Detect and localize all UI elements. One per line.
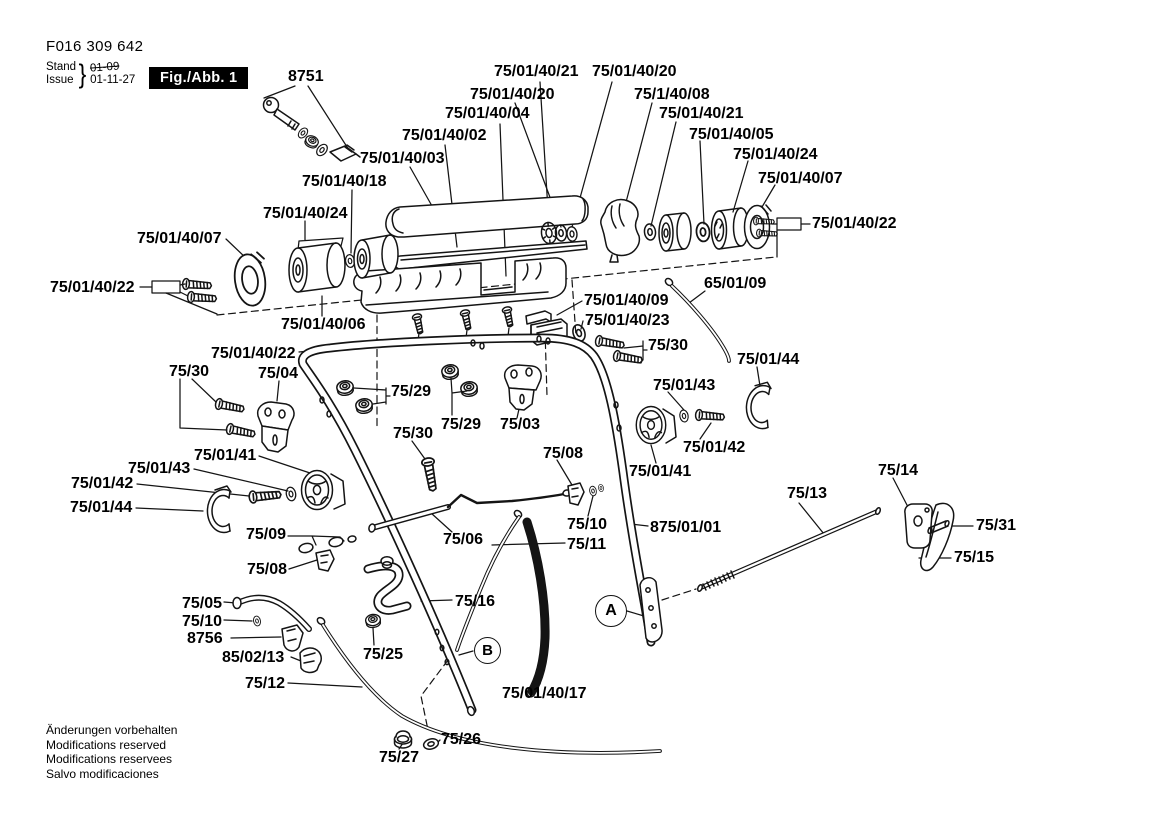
wheel-clamp-left-drawing [207, 471, 345, 533]
revision-brace: } [79, 61, 87, 87]
revision-date-new: 01-11-27 [90, 74, 135, 87]
notice-line-de: Änderungen vorbehalten [46, 723, 177, 738]
part-label-75-01-40-07-a: 75/01/40/07 [758, 171, 843, 187]
notice-line-es: Salvo modificaciones [46, 767, 177, 782]
part-label-75-01-40-24-b: 75/01/40/24 [263, 206, 348, 222]
part-label-8751: 8751 [288, 69, 324, 85]
part-label-75-29-b: 75/29 [441, 417, 481, 433]
view-marker-a-letter: A [605, 602, 617, 620]
part-label-75-29-a: 75/29 [391, 384, 431, 400]
part-label-75-01-44-b: 75/01/44 [70, 500, 132, 516]
part-label-75-30-a: 75/30 [648, 338, 688, 354]
part-label-8756: 8756 [187, 631, 223, 647]
part-label-75-26: 75/26 [441, 732, 481, 748]
part-label-85-02-13: 85/02/13 [222, 650, 284, 666]
part-label-75-06: 75/06 [443, 532, 483, 548]
part-label-75-25: 75/25 [363, 647, 403, 663]
part-label-75-01-40-02: 75/01/40/02 [402, 128, 487, 144]
document-number: F016 309 642 [46, 38, 143, 55]
housing-screws-drawing [412, 306, 515, 334]
part-label-75-04: 75/04 [258, 366, 298, 382]
part-label-65-01-09: 65/01/09 [704, 276, 766, 292]
part-label-75-09: 75/09 [246, 527, 286, 543]
part-label-75-12: 75/12 [245, 676, 285, 692]
part-label-75-01-40-05: 75/01/40/05 [689, 127, 774, 143]
issue-label: Issue [46, 74, 76, 87]
part-label-75-01-40-22-c: 75/01/40/22 [211, 346, 296, 362]
rod-drawing [697, 507, 881, 592]
lever-drawing [905, 503, 954, 570]
part-label-75-01-42-a: 75/01/42 [683, 440, 745, 456]
upper-cover-drawing [386, 196, 588, 237]
part-label-75-30-b: 75/30 [169, 364, 209, 380]
part-label-75-01-40-03: 75/01/40/03 [360, 151, 445, 167]
part-label-75-03: 75/03 [500, 417, 540, 433]
part-label-75-01-40-24-a: 75/01/40/24 [733, 147, 818, 163]
key-assembly-drawing [264, 98, 361, 162]
part-label-75-01-40-04: 75/01/40/04 [445, 106, 530, 122]
revision-block: Stand Issue } 01-09 01-11-27 [46, 61, 135, 87]
view-marker-b-letter: B [482, 642, 493, 659]
part-label-75-31: 75/31 [976, 518, 1016, 534]
part-label-75-05: 75/05 [182, 596, 222, 612]
part-label-75-01-40-20-b: 75/01/40/20 [470, 87, 555, 103]
part-label-75-1-40-08: 75/1/40/08 [634, 87, 710, 103]
part-label-75-01-40-22-b: 75/01/40/22 [50, 280, 135, 296]
part-label-75-08-b: 75/08 [247, 562, 287, 578]
notice-line-en: Modifications reserved [46, 738, 177, 753]
part-label-75-01-43-a: 75/01/43 [653, 378, 715, 394]
part-label-75-01-44-a: 75/01/44 [737, 352, 799, 368]
part-label-75-01-40-09: 75/01/40/09 [584, 293, 669, 309]
stand-label: Stand [46, 61, 76, 74]
part-label-75-01-40-22-a: 75/01/40/22 [812, 216, 897, 232]
part-label-75-01-42-b: 75/01/42 [71, 476, 133, 492]
part-label-75-01-43-b: 75/01/43 [128, 461, 190, 477]
part-label-75-30-c: 75/30 [393, 426, 433, 442]
part-label-75-14: 75/14 [878, 463, 918, 479]
support-bracket-drawing [365, 557, 407, 629]
part-label-75-11: 75/11 [567, 537, 606, 553]
part-label-75-01-40-21-b: 75/01/40/21 [659, 106, 744, 122]
part-label-75-01-40-07-b: 75/01/40/07 [137, 231, 222, 247]
part-label-75-01-40-17: 75/01/40/17 [502, 686, 587, 702]
part-label-75-16: 75/16 [455, 594, 495, 610]
lower-bar-drawing [368, 489, 571, 532]
part-label-75-10-a: 75/10 [567, 517, 607, 533]
clamp-bracket-left-drawing [215, 398, 294, 452]
part-label-75-13: 75/13 [787, 486, 827, 502]
part-label-75-01-40-23: 75/01/40/23 [585, 313, 670, 329]
notice-line-fr: Modifications reservees [46, 752, 177, 767]
exploded-parts-diagram-page: F016 309 642 Stand Issue } 01-09 01-11-2… [0, 0, 1168, 825]
part-label-75-01-41-a: 75/01/41 [629, 464, 691, 480]
part-label-75-01-41-b: 75/01/41 [194, 448, 256, 464]
modifications-notice: Änderungen vorbehalten Modifications res… [46, 723, 177, 781]
part-label-75-01-40-06: 75/01/40/06 [281, 317, 366, 333]
view-marker-a: A [595, 595, 627, 627]
part-label-75-01-40-21-a: 75/01/40/21 [494, 64, 579, 80]
part-label-75-01-40-18: 75/01/40/18 [302, 174, 387, 190]
part-label-75-10-b: 75/10 [182, 614, 222, 630]
part-label-75-15: 75/15 [954, 550, 994, 566]
figure-badge: Fig./Abb. 1 [149, 67, 248, 89]
part-label-75-01-40-20-a: 75/01/40/20 [592, 64, 677, 80]
view-marker-b: B [474, 637, 501, 664]
part-label-875-01-01: 875/01/01 [650, 520, 721, 536]
fasteners-bottom-drawing [395, 731, 440, 751]
part-label-75-27: 75/27 [379, 750, 419, 766]
part-label-75-08-a: 75/08 [543, 446, 583, 462]
